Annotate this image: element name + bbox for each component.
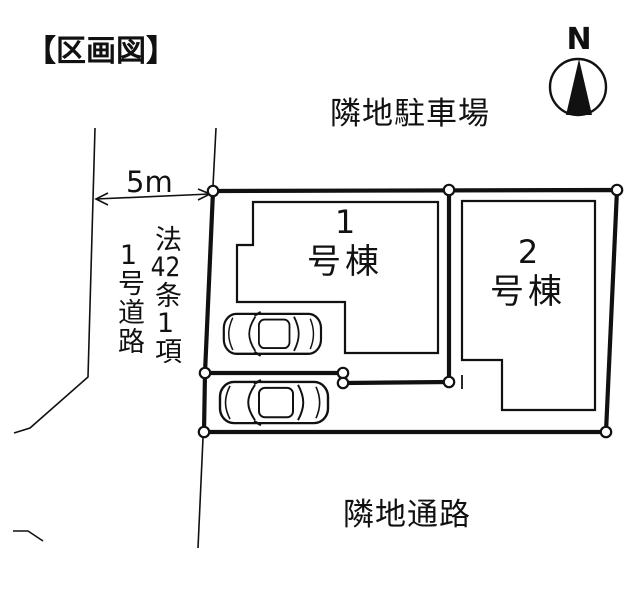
road-name-part: 項: [150, 337, 181, 366]
compass-north-label: N: [562, 22, 596, 57]
road-name-part: 号道路: [113, 269, 144, 356]
neighbor-parking-label: 隣地駐車場: [330, 88, 490, 133]
neighbor-passage-label: 隣地通路: [343, 489, 471, 534]
building-2-label: 2 号棟: [438, 232, 618, 312]
page-title: 【区画図】: [26, 26, 176, 70]
road-width-label: 5m: [126, 165, 173, 199]
building-2-suffix: 号棟: [438, 272, 618, 312]
road-name-part: 条: [150, 281, 181, 310]
car-1-icon: [224, 312, 321, 356]
road-name-part: 42: [150, 254, 181, 281]
plot-diagram-page: 【区画図】 隣地駐車場 N 5m 法42条1項 1号道路 1 号棟 2 号棟 隣…: [0, 0, 640, 590]
road-name-column-2: 1号道路: [109, 242, 147, 356]
road-name-part: 1: [113, 242, 144, 269]
road-name-part: 1: [150, 310, 181, 337]
building-2-number: 2: [438, 232, 618, 272]
building-1-number: 1: [255, 202, 435, 242]
building-1-suffix: 号棟: [255, 242, 435, 282]
road-name-part: 法: [150, 225, 181, 254]
building-1-label: 1 号棟: [255, 202, 435, 282]
road-name-column-1: 法42条1項: [146, 225, 184, 366]
compass-icon: [550, 59, 606, 115]
car-2-icon: [220, 380, 328, 425]
